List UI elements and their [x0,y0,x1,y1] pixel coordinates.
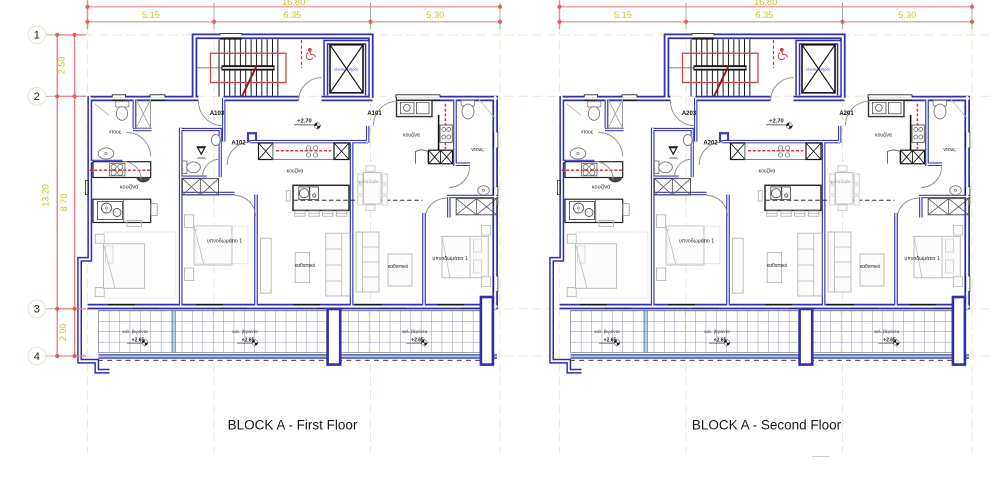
svg-text:2.00: 2.00 [58,324,68,342]
svg-text:BLOCK A - First Floor: BLOCK A - First Floor [228,418,358,433]
svg-text:+2.70: +2.70 [297,119,311,125]
svg-text:ανελκυστήρας: ανελκυστήρας [334,66,359,71]
svg-text:A201: A201 [839,111,854,117]
svg-text:1: 1 [34,30,40,42]
svg-text:5.30: 5.30 [426,10,444,20]
svg-text:BLOCK A - Second Floor: BLOCK A - Second Floor [692,418,842,433]
svg-text:ντους: ντους [471,147,484,153]
svg-text:3: 3 [34,304,40,316]
svg-text:A203: A203 [682,111,697,117]
svg-text:καλ. βεράντα: καλ. βεράντα [402,329,428,334]
svg-text:4: 4 [34,351,40,363]
svg-text:2.50: 2.50 [57,57,67,75]
svg-text:A202: A202 [703,141,718,147]
svg-text:6.35: 6.35 [283,10,301,20]
svg-text:A103: A103 [210,111,225,117]
svg-text:ντους: ντους [197,156,206,160]
svg-text:13.20: 13.20 [41,184,51,207]
svg-text:κουζίνα: κουζίνα [287,169,304,175]
svg-text:16.80: 16.80 [282,0,305,7]
svg-text:A102: A102 [231,141,246,147]
svg-text:κουζίνα: κουζίνα [403,133,420,139]
svg-text:A101: A101 [367,111,382,117]
svg-text:2: 2 [34,91,40,103]
svg-text:8.70: 8.70 [59,194,69,212]
svg-text:καλ. βεράντα: καλ. βεράντα [122,329,148,334]
svg-text:κουζίνα: κουζίνα [120,185,139,191]
svg-text:ντους: ντους [109,130,122,136]
svg-text:καθιστικό: καθιστικό [388,263,409,270]
svg-text:υπνοδωμάτιο 1: υπνοδωμάτιο 1 [432,255,467,262]
svg-text:υπνοδωμάτιο 1: υπνοδωμάτιο 1 [207,237,242,244]
svg-text:τραπεζαρία: τραπεζαρία [358,179,380,184]
svg-text:καθιστικό: καθιστικό [295,262,316,269]
svg-text:καλ. βεράντα: καλ. βεράντα [232,329,258,334]
svg-text:5.15: 5.15 [142,10,160,20]
